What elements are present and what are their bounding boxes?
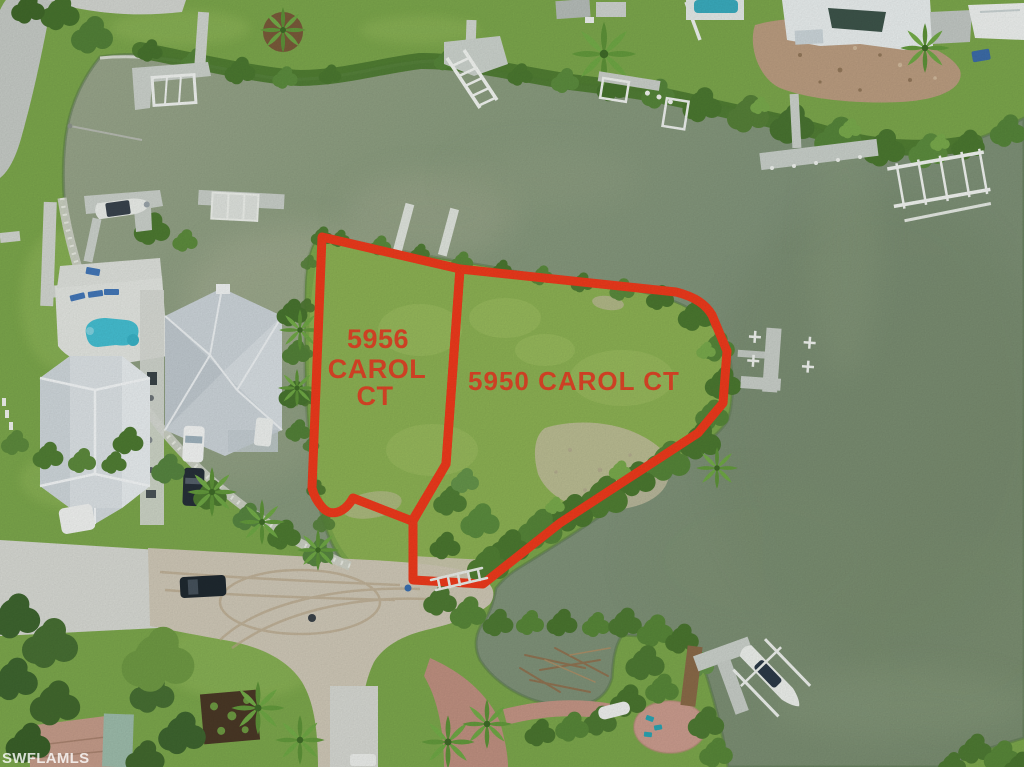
grain-overlay [0,0,1024,767]
aerial-listing-photo: 5956 CAROL CT 5950 CAROL CT SWFLAMLS [0,0,1024,767]
watermark: SWFLAMLS [2,750,89,767]
